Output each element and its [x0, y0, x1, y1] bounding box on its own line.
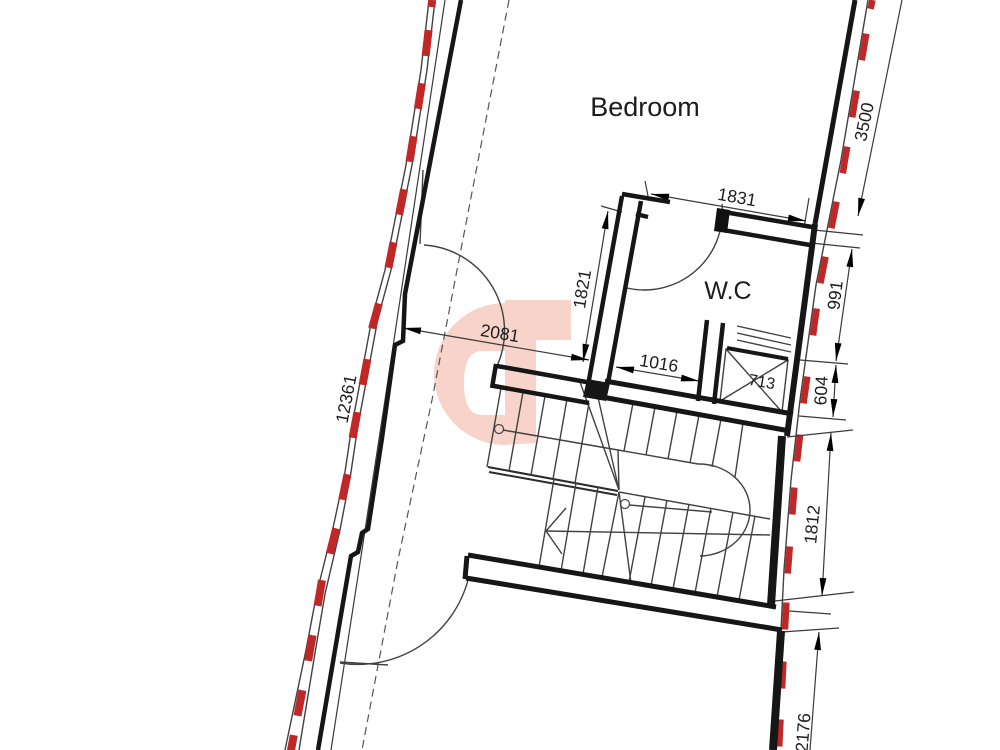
svg-text:W.C: W.C — [704, 277, 751, 305]
svg-text:2176: 2176 — [792, 712, 815, 750]
svg-text:991: 991 — [823, 280, 846, 311]
svg-text:604: 604 — [810, 375, 832, 406]
svg-text:1812: 1812 — [800, 504, 824, 545]
svg-text:Bedroom: Bedroom — [590, 92, 700, 122]
